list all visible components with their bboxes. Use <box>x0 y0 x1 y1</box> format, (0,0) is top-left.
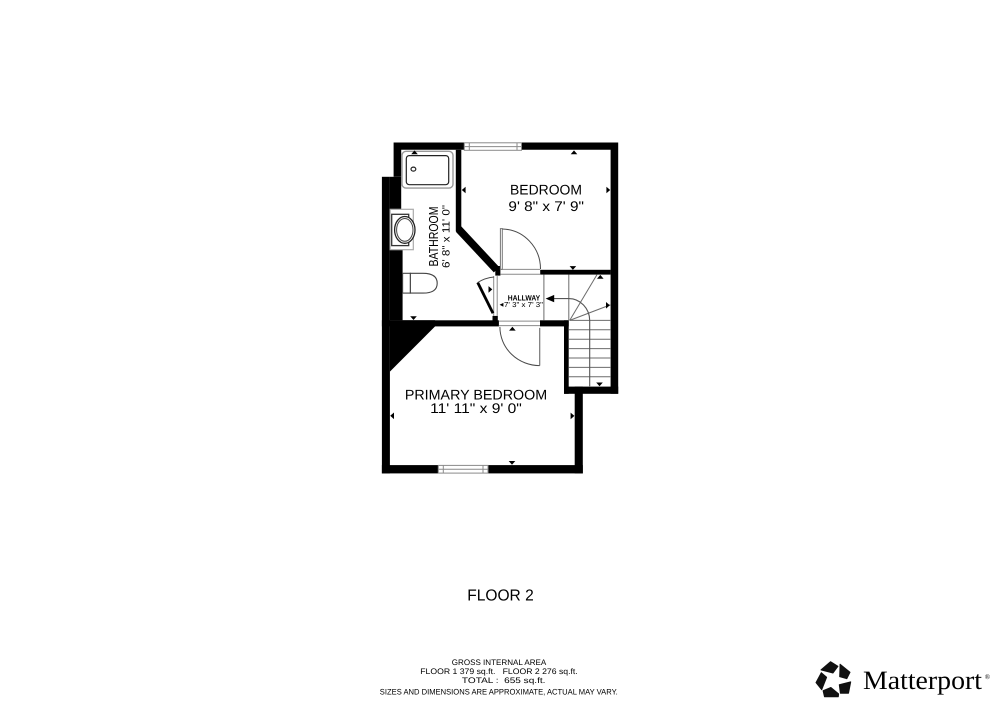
svg-text:9' 8" x 7' 9": 9' 8" x 7' 9" <box>508 198 584 214</box>
svg-text:TOTAL : 655 sq.ft.: TOTAL : 655 sq.ft. <box>462 676 546 685</box>
svg-text:BATHROOM: BATHROOM <box>426 207 441 267</box>
svg-text:SIZES AND DIMENSIONS ARE APPRO: SIZES AND DIMENSIONS ARE APPROXIMATE, AC… <box>380 688 618 697</box>
svg-text:Matterport: Matterport <box>863 665 983 695</box>
svg-text:FLOOR 1 379 sq.ft. FLOOR 2 2: FLOOR 1 379 sq.ft. FLOOR 2 276 sq.ft. <box>420 667 578 676</box>
svg-text:FLOOR 2: FLOOR 2 <box>467 588 534 605</box>
svg-text:GROSS INTERNAL AREA: GROSS INTERNAL AREA <box>452 658 547 667</box>
svg-text:6' 8" x 11' 0": 6' 8" x 11' 0" <box>441 205 453 268</box>
svg-text:BEDROOM: BEDROOM <box>510 182 582 198</box>
svg-text:7' 3" x 7' 3": 7' 3" x 7' 3" <box>504 300 543 309</box>
svg-text:®: ® <box>985 673 991 681</box>
svg-text:11' 11" x 9' 0": 11' 11" x 9' 0" <box>430 400 522 416</box>
